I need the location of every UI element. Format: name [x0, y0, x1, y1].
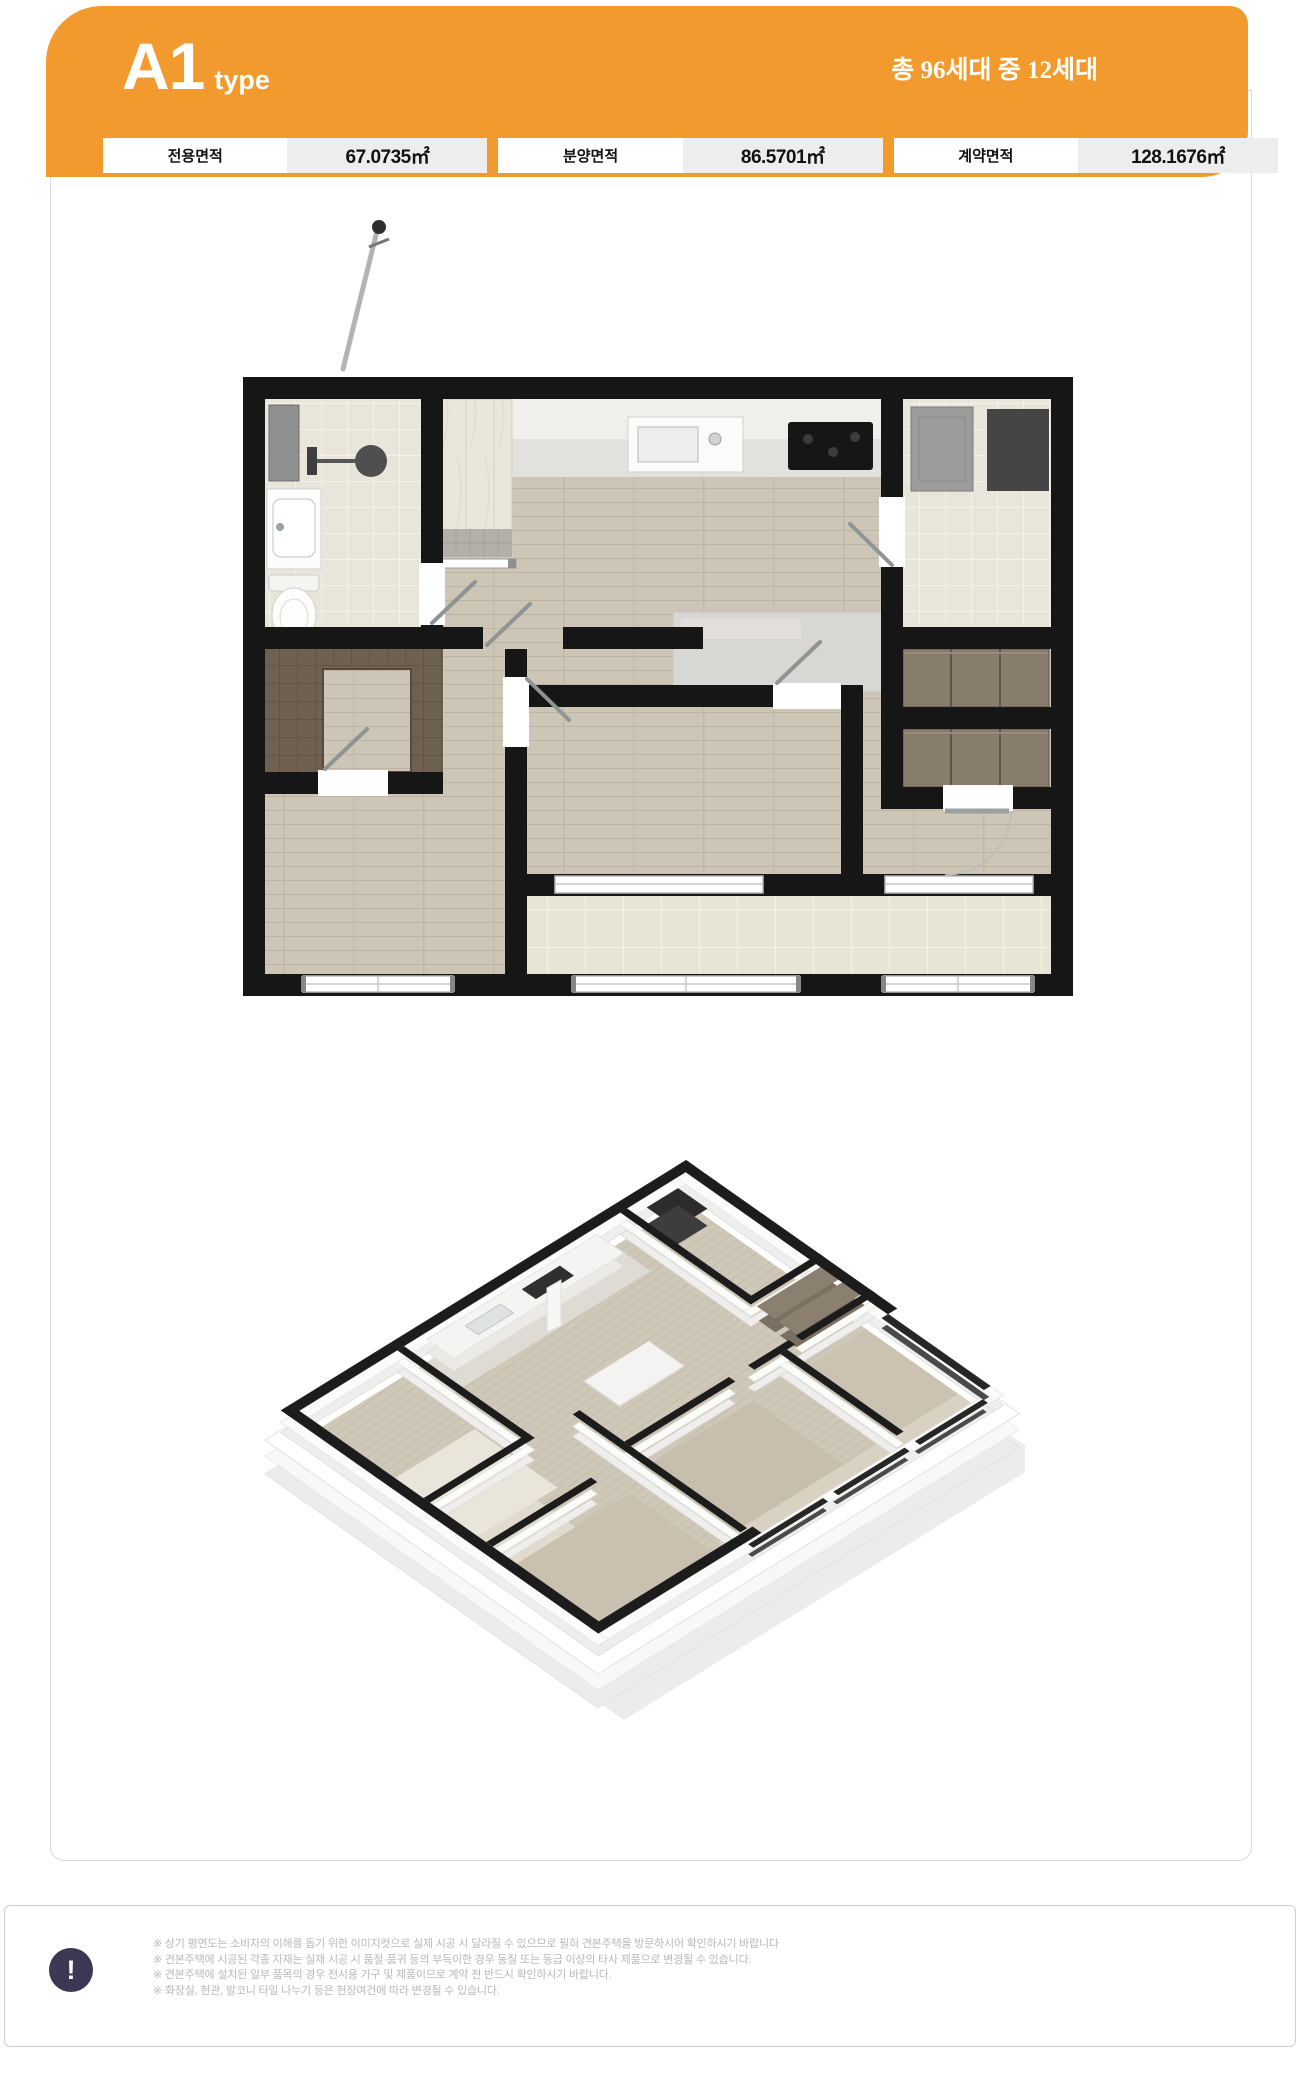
disclaimer-notes: ※ 상기 평면도는 소비자의 이해를 돕기 위한 이미지컷으로 실제 시공 시 … [153, 1937, 779, 1999]
area-label: 전용면적 [103, 138, 287, 173]
area-value: 86.5701㎡ [683, 138, 883, 173]
type-code: A1 [122, 29, 204, 103]
type-suffix: type [214, 65, 270, 95]
exclamation-icon: ! [49, 1948, 93, 1992]
floorplan-2d [243, 216, 1073, 996]
type-header: A1type 총 96세대 중 12세대 전용면적 67.0735㎡ 분양면적 … [46, 6, 1248, 177]
area-value: 128.1676㎡ [1078, 138, 1278, 173]
floorplan-page: A1type 총 96세대 중 12세대 전용면적 67.0735㎡ 분양면적 … [0, 0, 1300, 2073]
disclaimer-line: ※ 견본주택에 설치된 일부 품목의 경우 전시용 가구 및 제품이므로 계약 … [153, 1968, 779, 1984]
faucet-icon [709, 433, 721, 445]
washer [911, 407, 973, 491]
shower-rod-icon [343, 220, 389, 369]
iso-open-door [547, 1280, 561, 1332]
area-box-exclusive: 전용면적 67.0735㎡ [103, 138, 487, 173]
shower-head-icon [355, 445, 387, 477]
area-value: 67.0735㎡ [287, 138, 487, 173]
disclaimer-line: ※ 화장실, 현관, 발코니 타일 나누기 등은 현장여건에 따라 변경될 수 … [153, 1984, 779, 2000]
disclaimer-footer: ! ※ 상기 평면도는 소비자의 이해를 돕기 위한 이미지컷으로 실제 시공 … [4, 1905, 1296, 2047]
area-info-row: 전용면적 67.0735㎡ 분양면적 86.5701㎡ 계약면적 128.167… [103, 138, 1278, 173]
area-box-contract: 계약면적 128.1676㎡ [894, 138, 1278, 173]
type-title: A1type [122, 28, 270, 104]
sink-basin [638, 427, 698, 462]
bath-cabinet [269, 405, 299, 481]
disclaimer-line: ※ 견본주택에 시공된 각종 자재는 실제 시공 시 품절·품귀 등의 부득이한… [153, 1953, 779, 1969]
floorplan-3d [255, 1140, 1025, 1840]
area-label: 분양면적 [498, 138, 682, 173]
unit-count-label: 총 96세대 중 12세대 [891, 50, 1098, 86]
area-label: 계약면적 [894, 138, 1078, 173]
dryer [987, 409, 1049, 491]
balcony-floor [520, 896, 1051, 974]
area-box-supply: 분양면적 86.5701㎡ [498, 138, 882, 173]
disclaimer-line: ※ 상기 평면도는 소비자의 이해를 돕기 위한 이미지컷으로 실제 시공 시 … [153, 1937, 779, 1953]
cooktop [788, 422, 873, 470]
